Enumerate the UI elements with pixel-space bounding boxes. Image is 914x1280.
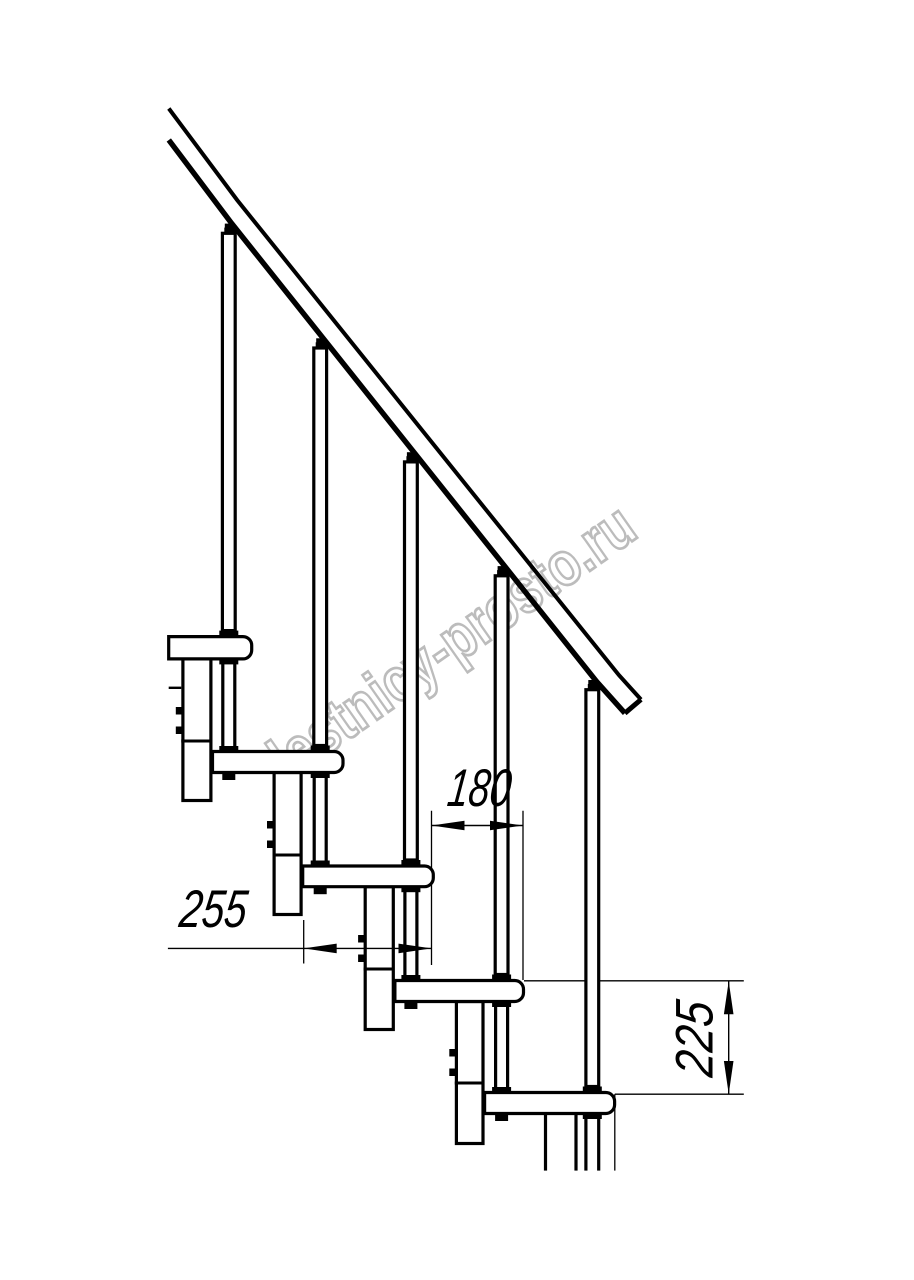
svg-text:180: 180: [445, 759, 516, 818]
svg-text:225: 225: [666, 997, 725, 1080]
svg-text:255: 255: [176, 880, 251, 939]
